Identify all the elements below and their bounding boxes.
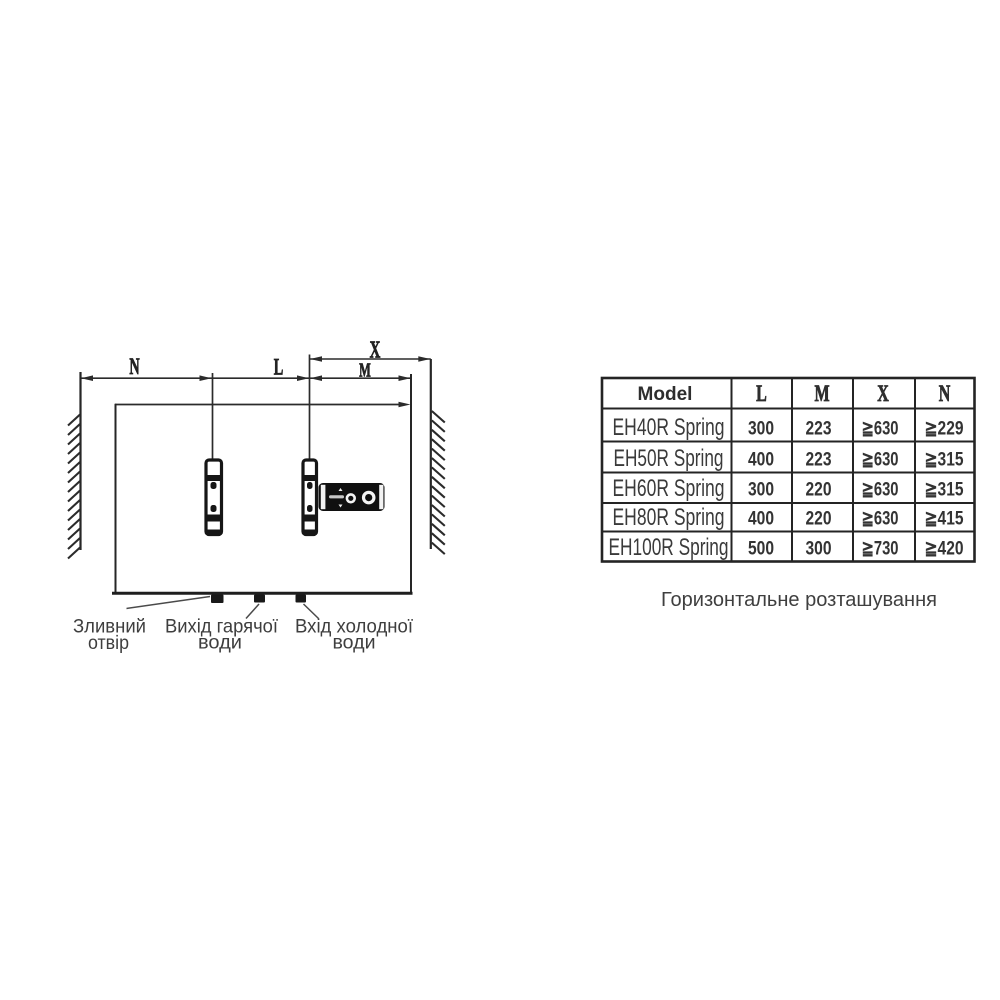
svg-text:Model: Model: [638, 384, 693, 405]
svg-text:води: води: [198, 632, 242, 654]
svg-text:≧315: ≧315: [925, 479, 964, 501]
svg-text:220: 220: [806, 508, 832, 530]
svg-text:X: X: [370, 337, 381, 363]
svg-text:≧630: ≧630: [862, 418, 899, 440]
svg-text:EH40R Spring: EH40R Spring: [613, 414, 725, 441]
svg-text:EH100R Spring: EH100R Spring: [609, 534, 729, 561]
svg-text:N: N: [939, 381, 951, 407]
svg-text:Горизонтальне розташування: Горизонтальне розташування: [661, 589, 937, 611]
svg-text:M: M: [814, 381, 829, 407]
svg-text:≧630: ≧630: [862, 479, 899, 501]
svg-text:223: 223: [806, 449, 832, 471]
svg-text:X: X: [877, 381, 889, 407]
svg-text:400: 400: [748, 508, 774, 530]
svg-text:EH60R Spring: EH60R Spring: [613, 475, 725, 502]
svg-text:400: 400: [748, 449, 774, 471]
svg-text:L: L: [274, 355, 284, 380]
svg-text:≧415: ≧415: [925, 508, 964, 530]
svg-text:≧630: ≧630: [862, 508, 899, 530]
svg-text:300: 300: [748, 479, 774, 501]
svg-text:≧315: ≧315: [925, 449, 964, 471]
svg-text:500: 500: [748, 538, 774, 560]
svg-text:EH80R Spring: EH80R Spring: [613, 504, 725, 531]
svg-text:300: 300: [806, 538, 832, 560]
svg-text:300: 300: [748, 418, 774, 440]
svg-text:EH50R Spring: EH50R Spring: [614, 445, 724, 472]
svg-text:≧420: ≧420: [925, 538, 964, 560]
svg-text:≧229: ≧229: [925, 418, 964, 440]
svg-text:223: 223: [806, 418, 832, 440]
svg-text:L: L: [756, 381, 767, 407]
svg-text:≧730: ≧730: [862, 538, 899, 560]
svg-text:отвір: отвір: [88, 632, 129, 654]
svg-text:N: N: [129, 355, 139, 380]
svg-text:220: 220: [806, 479, 832, 501]
svg-text:≧630: ≧630: [862, 449, 899, 471]
svg-text:води: води: [333, 632, 376, 654]
